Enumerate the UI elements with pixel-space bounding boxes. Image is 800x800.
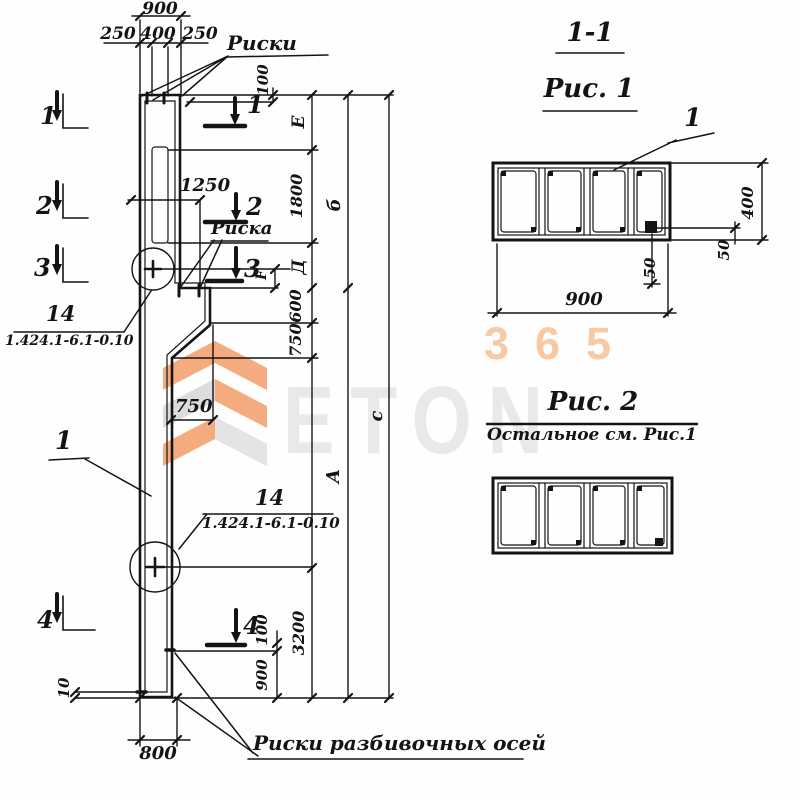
dim-10: 10 <box>54 676 74 700</box>
fig1-dim-900: 900 <box>556 291 612 309</box>
dim-250-right: 250 <box>180 26 220 43</box>
dim-100-bottom: 100 <box>252 613 272 647</box>
fig1-section-ref: 1-1 <box>556 20 624 46</box>
callout-pos1: 1 <box>55 428 72 453</box>
dim-250-left: 250 <box>98 26 138 43</box>
letter-F: F <box>252 267 272 283</box>
dimension-ticks <box>71 12 393 744</box>
dim-800: 800 <box>132 745 184 763</box>
dim-1800: 1800 <box>287 173 307 219</box>
fig1-pos1: 1 <box>684 105 701 130</box>
dim-1250: 1250 <box>180 177 230 195</box>
section-3-left: 3 <box>34 256 51 280</box>
label-riski-axes: Риски разбивочных осей <box>253 733 546 753</box>
callout-14-upper-mark: 14 <box>46 303 75 324</box>
dim-600: 600 <box>286 289 306 323</box>
drawing-linework <box>0 0 800 800</box>
blueprint-canvas: ETON 365 <box>0 0 800 800</box>
dim-400: 400 <box>138 26 178 43</box>
callout-14-lower-series: 1.424.1-6.1-0.10 <box>202 516 340 531</box>
callout-14-upper-series: 1.424.1-6.1-0.10 <box>5 334 134 348</box>
dim-900-top: 900 <box>134 1 186 18</box>
letter-D: Д <box>289 256 309 278</box>
dim-750-vert: 750 <box>286 323 306 357</box>
dim-100-top: 100 <box>253 63 273 97</box>
dim-750-horiz: 750 <box>175 398 213 416</box>
section-1-left: 1 <box>40 104 57 128</box>
fig1-dim-50-right: 50 <box>714 238 734 262</box>
fig2-section <box>493 478 672 553</box>
letter-b: б <box>325 196 345 214</box>
fig1-dim-50-bottom: 50 <box>640 256 660 280</box>
fig2-note: Остальное см. Рис.1 <box>487 427 697 444</box>
section-4-left: 4 <box>37 608 54 632</box>
callout-14-lower-mark: 14 <box>255 487 284 508</box>
letter-E: Е <box>289 111 309 133</box>
dim-900-bottom: 900 <box>252 658 272 692</box>
fig1-dim-400: 400 <box>738 186 758 220</box>
fig1-title: Рис. 1 <box>541 76 637 102</box>
fig2-title: Рис. 2 <box>541 389 645 415</box>
label-riska: Риска <box>211 220 272 238</box>
section-markers-left <box>52 92 95 630</box>
section-2-right: 2 <box>246 195 263 219</box>
dim-3200: 3200 <box>289 610 309 656</box>
letter-C: с <box>367 407 387 425</box>
section-2-left: 2 <box>36 194 53 218</box>
label-riski: Риски <box>227 33 297 53</box>
letter-A: А <box>324 465 344 487</box>
